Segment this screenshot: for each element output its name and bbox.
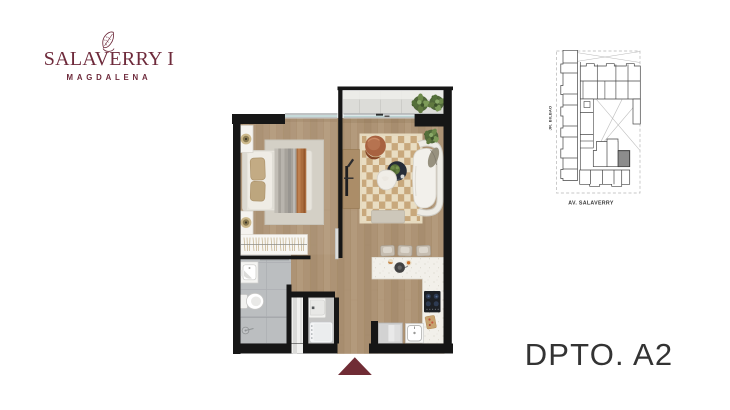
svg-text:JR. BILBAO: JR. BILBAO [548, 106, 553, 131]
svg-text:AV. SALAVERRY: AV. SALAVERRY [568, 201, 614, 207]
